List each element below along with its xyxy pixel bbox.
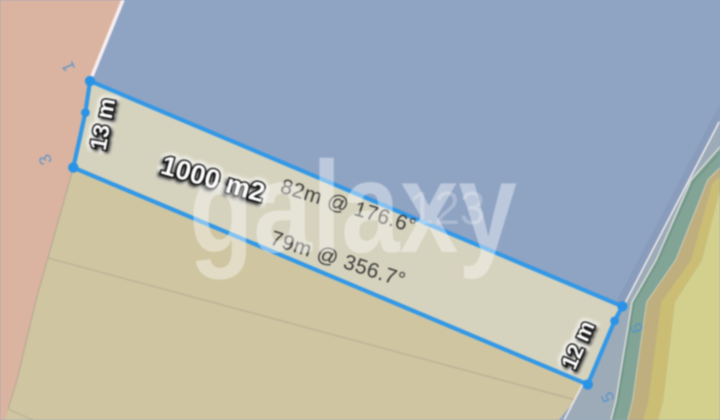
svg-text:123: 123 <box>409 182 486 234</box>
